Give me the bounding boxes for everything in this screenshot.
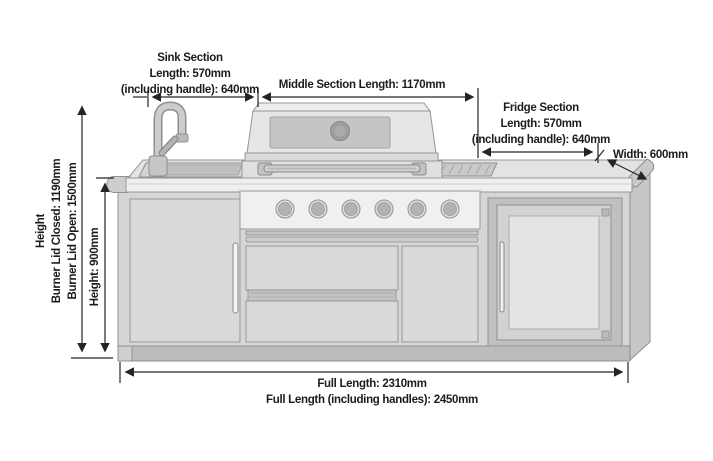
- full-length-line2: Full Length (including handles): 2450mm: [266, 392, 478, 408]
- sink-section-label: Sink Section Length: 570mm (including ha…: [121, 50, 259, 98]
- burner-knob: [441, 200, 459, 218]
- door-handle: [233, 243, 238, 313]
- hood-window: [270, 117, 390, 148]
- fridge-handle: [500, 242, 504, 312]
- thermometer-dial: [335, 126, 346, 137]
- full-length-label: Full Length: 2310mm Full Length (includi…: [266, 376, 478, 408]
- burner-knob: [375, 200, 393, 218]
- drawer-top: [246, 246, 398, 290]
- plinth: [118, 346, 630, 361]
- burner-knob: [276, 200, 294, 218]
- fridge-glass: [509, 216, 599, 329]
- sink-cabinet-door: [130, 199, 240, 342]
- fridge-section-title: Fridge Section: [472, 100, 610, 116]
- burner-knob: [408, 200, 426, 218]
- drawer-handle-strip: [248, 290, 396, 301]
- middle-section-label: Middle Section Length: 1170mm: [279, 77, 445, 93]
- middle-section-length: Middle Section Length: 1170mm: [279, 77, 445, 93]
- hood-handle: [242, 161, 442, 178]
- middle-cabinet-door: [402, 246, 478, 342]
- full-length-line1: Full Length: 2310mm: [266, 376, 478, 392]
- burner-knob: [309, 200, 327, 218]
- height-lid-closed: Burner Lid Closed: 1190mm: [49, 159, 65, 304]
- fridge-section-length: Length: 570mm: [472, 116, 610, 132]
- outdoor-kitchen-dimension-diagram: Sink Section Length: 570mm (including ha…: [0, 0, 713, 461]
- right-side-panel: [630, 173, 650, 360]
- height-lid-open: Burner Lid Open: 1500mm: [65, 159, 81, 304]
- bbq-hood: [245, 103, 438, 161]
- fridge-hinge-bottom: [602, 331, 609, 338]
- sink-section-title: Sink Section: [121, 50, 259, 66]
- fridge-hinge-top: [602, 209, 609, 216]
- burner-knob: [342, 200, 360, 218]
- height-cabinet-label: Height: 900mm: [87, 228, 103, 307]
- fridge-door: [488, 198, 622, 346]
- drawer-bottom: [246, 301, 398, 342]
- width-label: Width: 600mm: [613, 147, 688, 163]
- height-title: Height: [33, 159, 49, 304]
- fridge-section-including-handle: (including handle): 640mm: [472, 132, 610, 148]
- fridge-section-label: Fridge Section Length: 570mm (including …: [472, 100, 610, 148]
- sink-section-including-handle: (including handle): 640mm: [121, 82, 259, 98]
- sink-section-length: Length: 570mm: [121, 66, 259, 82]
- height-outer-label: Height Burner Lid Closed: 1190mm Burner …: [33, 159, 81, 304]
